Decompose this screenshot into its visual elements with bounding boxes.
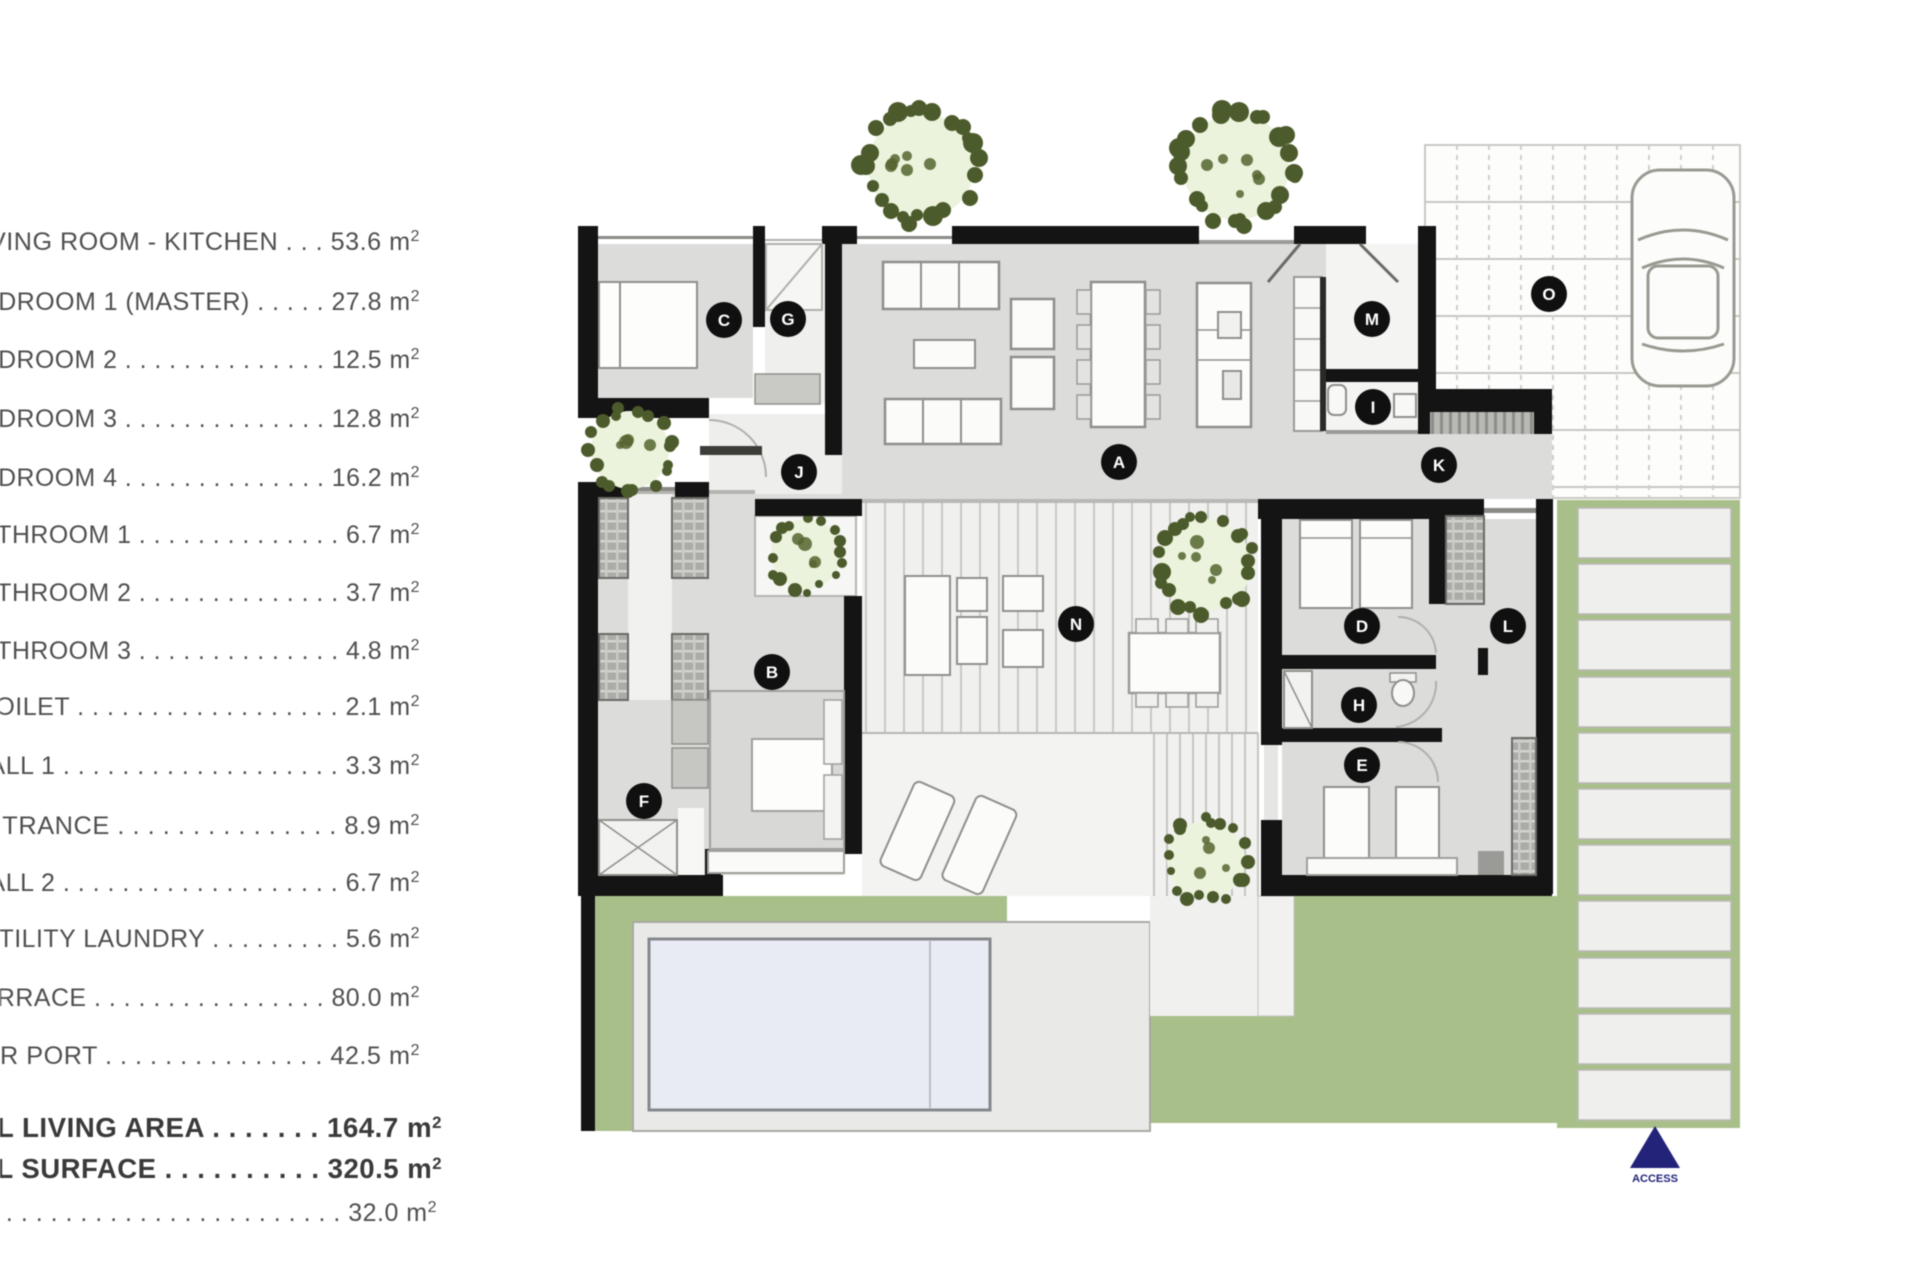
svg-text:J: J [794, 463, 803, 482]
svg-text:F: F [639, 792, 649, 811]
svg-text:L: L [1503, 617, 1513, 636]
svg-text:HALL 1 . . . . . . . . . . . .: HALL 1 . . . . . . . . . . . . . . . . .… [0, 752, 420, 780]
svg-text:K: K [1433, 456, 1446, 475]
svg-text:BATHROOM 3 . . . . . . . . . .: BATHROOM 3 . . . . . . . . . . . . . . 4… [0, 637, 420, 665]
svg-text:ENTRANCE . . . . . . . . . . .: ENTRANCE . . . . . . . . . . . . . . . 8… [0, 812, 420, 840]
svg-text:UTILITY LAUNDRY . . . . . . .: UTILITY LAUNDRY . . . . . . . . . 5.6 m2 [0, 925, 420, 953]
svg-text:BATHROOM 2 . . . . . . . . . .: BATHROOM 2 . . . . . . . . . . . . . . 3… [0, 579, 420, 607]
svg-text:C: C [718, 311, 730, 330]
svg-text:M: M [1365, 310, 1379, 329]
svg-text:TOILET . . . . . . . . . . . .: TOILET . . . . . . . . . . . . . . . . .… [0, 693, 420, 721]
svg-text:BEDROOM 2 . . . . . . . . . .: BEDROOM 2 . . . . . . . . . . . . . . 12… [0, 346, 420, 374]
svg-text:HALL 2 . . . . . . . . . . . .: HALL 2 . . . . . . . . . . . . . . . . .… [0, 869, 420, 897]
svg-text:TERRACE . . . . . . . . . . .: TERRACE . . . . . . . . . . . . . . . . … [0, 984, 420, 1012]
svg-text:H: H [1353, 696, 1365, 715]
svg-text:B: B [766, 663, 778, 682]
svg-text:CAR PORT . . . . . . . . . . .: CAR PORT . . . . . . . . . . . . . . . 4… [0, 1042, 420, 1070]
svg-text:TOTAL SURFACE . . . . . . . .: TOTAL SURFACE . . . . . . . . . . 320.5 … [0, 1153, 442, 1184]
svg-text:ACCESS: ACCESS [1632, 1173, 1678, 1185]
svg-text:BEDROOM 4 . . . . . . . . . .: BEDROOM 4 . . . . . . . . . . . . . . 16… [0, 464, 420, 492]
svg-text:TOTAL LIVING AREA . . . . . .: TOTAL LIVING AREA . . . . . . . 164.7 m2 [0, 1112, 442, 1143]
svg-text:O: O [1542, 285, 1555, 304]
svg-text:A: A [1113, 453, 1125, 472]
svg-text:G: G [781, 310, 794, 329]
svg-text:BEDROOM 3 . . . . . . . . . .: BEDROOM 3 . . . . . . . . . . . . . . 12… [0, 405, 420, 433]
svg-text:LIVING ROOM - KITCHEN . . . 53: LIVING ROOM - KITCHEN . . . 53.6 m2 [0, 228, 420, 256]
svg-text:BATHROOM 1 . . . . . . . . . .: BATHROOM 1 . . . . . . . . . . . . . . 6… [0, 521, 420, 549]
svg-text:E: E [1356, 756, 1367, 775]
svg-text:N: N [1070, 615, 1082, 634]
svg-text:POOL . . . . . . . . . . . . .: POOL . . . . . . . . . . . . . . . . . .… [0, 1199, 437, 1227]
svg-text:BEDROOM 1 (MASTER) . . . . . 2: BEDROOM 1 (MASTER) . . . . . 27.8 m2 [0, 288, 420, 316]
svg-text:D: D [1356, 617, 1368, 636]
svg-text:I: I [1371, 398, 1376, 417]
